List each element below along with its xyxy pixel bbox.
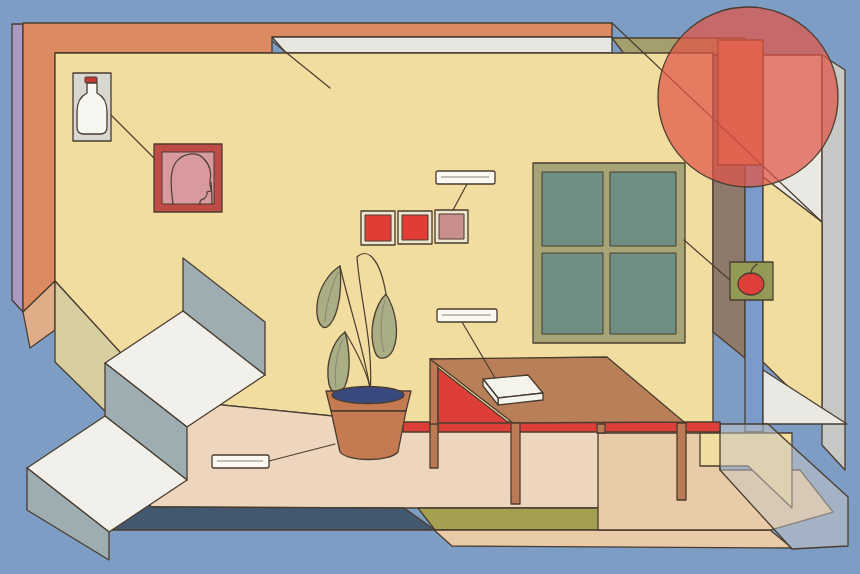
pot-body [331, 411, 406, 460]
squares-label [436, 171, 495, 184]
square-2 [402, 215, 428, 240]
wall-squares [361, 210, 468, 245]
square-3 [439, 214, 464, 239]
window-pane-bottom-right [610, 253, 676, 334]
window-pane-bottom-left [542, 253, 603, 334]
floor-label [212, 455, 269, 468]
window-pane-top-right [610, 172, 676, 246]
window-pane-top-left [542, 172, 603, 246]
illustration-canvas [0, 0, 860, 574]
square-1 [365, 215, 391, 241]
milk-bottle-card [73, 73, 111, 141]
table-leg-right [677, 423, 686, 500]
red-circle-overlay [658, 7, 838, 187]
table-leg-left [430, 424, 438, 468]
floor-peach-band [434, 530, 792, 548]
tomato [738, 273, 764, 295]
book-label [437, 309, 497, 322]
tomato-card [730, 262, 773, 300]
window [533, 163, 685, 343]
bottle-cap [85, 77, 97, 83]
illustration-root [0, 0, 860, 574]
room-illustration [0, 0, 860, 574]
floor-olive-band [418, 508, 622, 530]
ceiling-cornice-strip [272, 37, 612, 53]
table-left-edge [430, 359, 438, 430]
portrait-frame [154, 144, 222, 212]
pot-soil [332, 387, 404, 404]
purple-accent-strip [12, 24, 23, 312]
table-leg-back [597, 424, 605, 433]
table-leg-front [511, 423, 520, 504]
